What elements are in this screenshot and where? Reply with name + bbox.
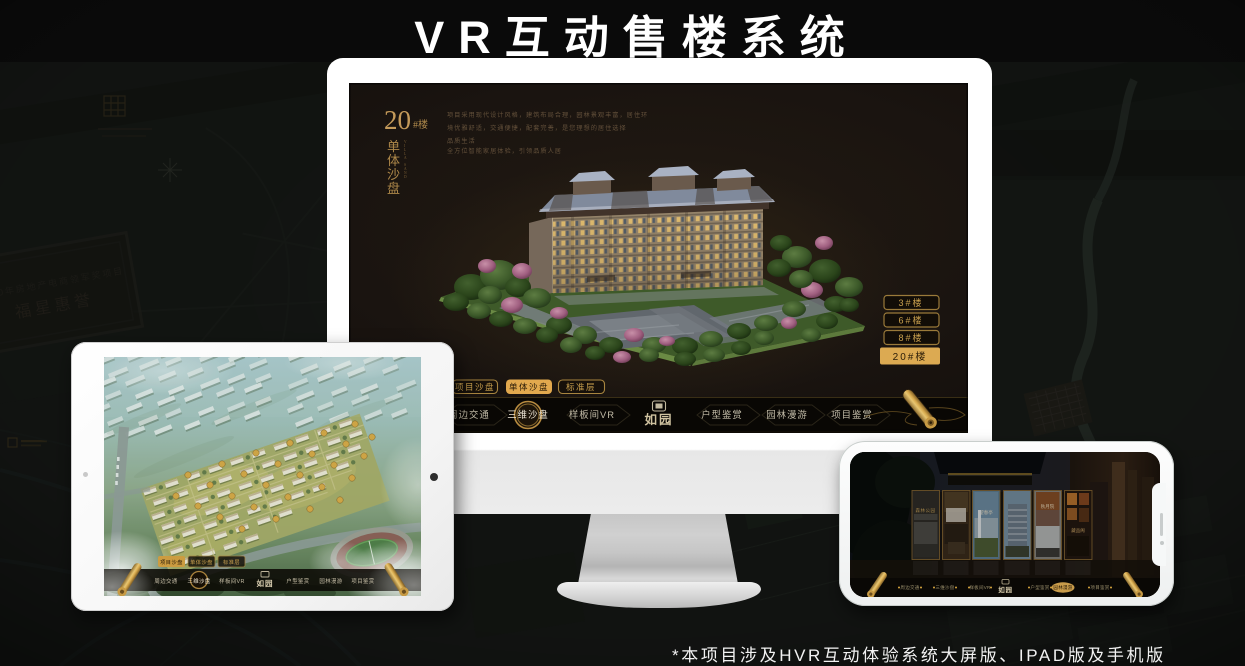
svg-text:境优雅舒适，交通便捷，配套完善，是您理想的居住选择: 境优雅舒适，交通便捷，配套完善，是您理想的居住选择 <box>447 124 627 132</box>
svg-text:样板间VR: 样板间VR <box>219 577 245 585</box>
svg-text:样板间VR: 样板间VR <box>969 584 991 591</box>
svg-text:6#楼: 6#楼 <box>898 315 923 326</box>
svg-text:20#楼: 20#楼 <box>893 350 928 363</box>
svg-text:如园: 如园 <box>644 412 673 427</box>
svg-text:8#楼: 8#楼 <box>898 332 923 343</box>
svg-text:单体沙盘: 单体沙盘 <box>190 558 213 566</box>
svg-text:3#楼: 3#楼 <box>898 297 923 308</box>
svg-text:周边交通: 周边交通 <box>900 584 919 591</box>
svg-text:#楼: #楼 <box>413 118 428 131</box>
svg-text:如园: 如园 <box>256 578 273 588</box>
svg-text:单: 单 <box>387 139 400 154</box>
svg-text:品质生活: 品质生活 <box>447 137 476 145</box>
svg-text:户型鉴赏: 户型鉴赏 <box>1030 584 1049 591</box>
svg-text:周边交通: 周边交通 <box>448 409 490 420</box>
svg-text:体: 体 <box>387 153 400 168</box>
svg-text:项目鉴赏: 项目鉴赏 <box>1090 584 1109 591</box>
svg-text:沙: 沙 <box>387 167 400 182</box>
svg-text:项目采用现代设计风格，建筑布局合理，园林景观丰富，居住环: 项目采用现代设计风格，建筑布局合理，园林景观丰富，居住环 <box>447 111 648 119</box>
svg-text:样板间VR: 样板间VR <box>569 409 615 420</box>
svg-text:园林漫游: 园林漫游 <box>319 577 342 585</box>
svg-text:园林漫游: 园林漫游 <box>766 409 808 420</box>
svg-text:D: D <box>404 175 407 179</box>
svg-text:20: 20 <box>384 105 411 135</box>
svg-text:项目鉴赏: 项目鉴赏 <box>831 409 873 420</box>
svg-text:标准层: 标准层 <box>222 558 239 566</box>
svg-text:如园: 如园 <box>998 585 1013 594</box>
svg-text:户型鉴赏: 户型鉴赏 <box>286 577 309 585</box>
svg-text:三维沙盘: 三维沙盘 <box>935 584 954 591</box>
svg-text:标准层: 标准层 <box>566 382 596 392</box>
svg-text:户型鉴赏: 户型鉴赏 <box>701 409 743 420</box>
svg-text:三维沙盘: 三维沙盘 <box>187 577 210 585</box>
svg-text:项目沙盘: 项目沙盘 <box>160 558 183 566</box>
svg-text:全方位智能家居体验，引领品质人居: 全方位智能家居体验，引领品质人居 <box>447 147 562 155</box>
svg-text:项目沙盘: 项目沙盘 <box>455 382 495 392</box>
svg-text:三维沙盘: 三维沙盘 <box>507 409 549 420</box>
svg-text:园林漫游: 园林漫游 <box>1053 584 1072 591</box>
svg-text:单体沙盘: 单体沙盘 <box>509 382 549 392</box>
svg-text:周边交通: 周边交通 <box>154 577 177 585</box>
svg-text:A: A <box>404 156 407 160</box>
svg-text:盘: 盘 <box>387 181 400 196</box>
